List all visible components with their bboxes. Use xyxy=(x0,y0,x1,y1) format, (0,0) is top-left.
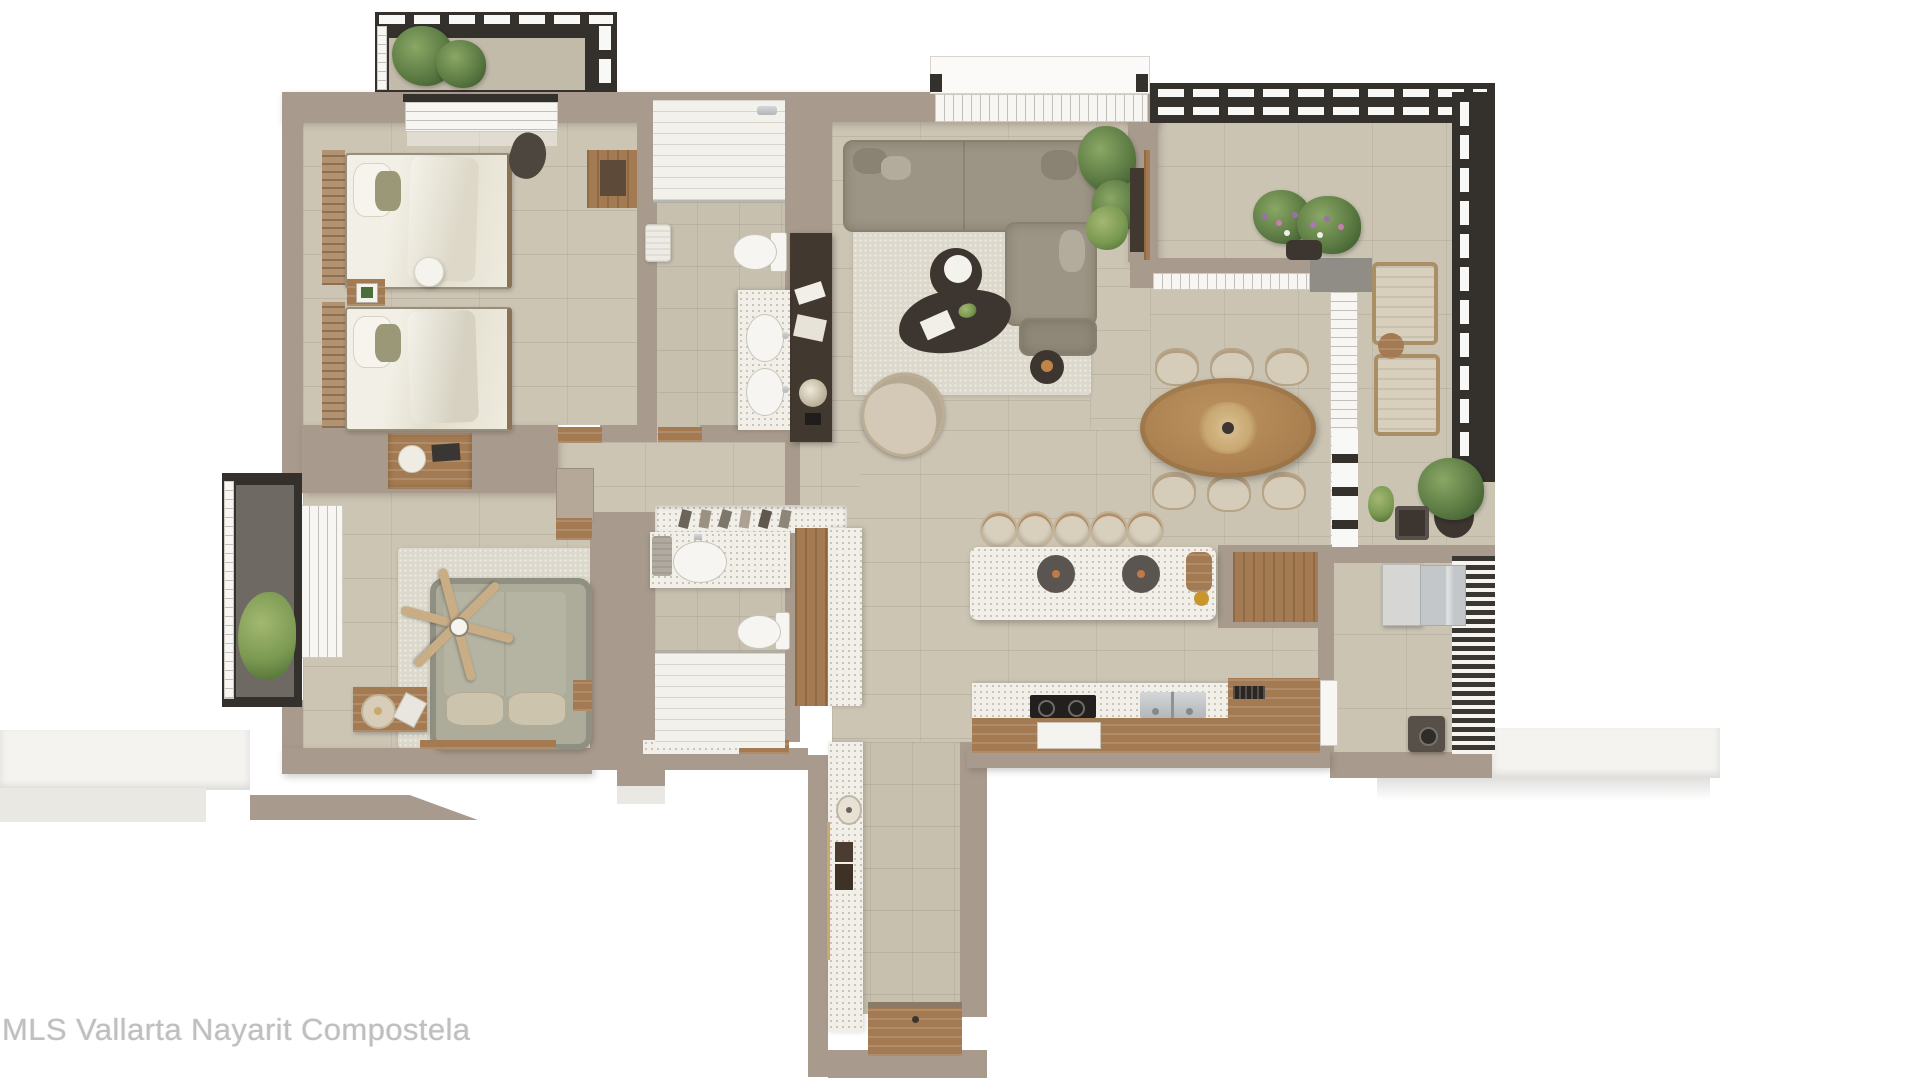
washer xyxy=(1382,564,1422,626)
pergola-top-frame xyxy=(1150,83,1495,123)
dining-chair xyxy=(1155,348,1199,386)
pergola-glass-line xyxy=(1158,107,1487,115)
honey-jar xyxy=(1194,591,1209,606)
built-in-fridge-cabinet xyxy=(1233,552,1318,622)
balcony-plant xyxy=(436,40,486,88)
floor-plan-render: MLS Vallarta Nayarit Compostela xyxy=(0,0,1920,1080)
round-pouf xyxy=(414,257,444,287)
exterior-walkway-left xyxy=(0,730,250,790)
vanity-bathroom1 xyxy=(738,290,790,430)
sink-faucet xyxy=(1152,708,1159,715)
kitchen-counter-front xyxy=(972,718,1228,753)
lounge-chair-1 xyxy=(1372,262,1438,345)
towel-bathroom2 xyxy=(652,536,672,576)
double-sink xyxy=(1140,692,1206,718)
towel-bathroom1 xyxy=(645,224,671,262)
table-flowers xyxy=(957,302,977,319)
terrace-slider-door xyxy=(1153,273,1310,290)
shower-glass xyxy=(653,200,785,203)
door-handle xyxy=(912,1016,919,1023)
sink-divider xyxy=(1171,692,1174,718)
entry-door xyxy=(868,1008,962,1056)
planter-flowers xyxy=(1262,214,1268,220)
terrace-door-threshold xyxy=(1310,258,1372,292)
console-box xyxy=(805,413,821,425)
toilet2-bowl xyxy=(737,615,781,649)
plate-center xyxy=(846,807,852,813)
exterior-walkway-right xyxy=(1492,728,1720,778)
dryer xyxy=(1420,565,1466,626)
round-tray xyxy=(361,694,396,729)
kitchen-tall-cabinets xyxy=(795,528,828,706)
pergola-glass-line xyxy=(1158,89,1487,97)
dining-chair xyxy=(1262,472,1306,510)
dining-chair xyxy=(1265,348,1309,386)
bedroom1-door-threshold xyxy=(558,427,602,443)
sofa-pillow xyxy=(881,156,911,180)
kitchen-corner-counter xyxy=(1228,678,1320,753)
bedroom2-balcony-door xyxy=(300,505,343,658)
faucet xyxy=(694,534,702,540)
sofa-sectional-main xyxy=(843,140,1097,232)
terrace-side-table xyxy=(1378,333,1404,359)
balcony-glass-panel-right xyxy=(599,26,611,90)
cooktop-burner xyxy=(1038,700,1055,717)
decor-cube xyxy=(835,864,853,890)
console-crystal-lamp xyxy=(799,379,827,407)
bathroom1-door-threshold xyxy=(658,427,702,442)
dining-chair xyxy=(1207,474,1251,512)
oven-door xyxy=(1037,722,1101,749)
south-wall-bedroom2 xyxy=(282,748,592,774)
night-stand-right xyxy=(573,680,592,711)
balcony-palm-plant xyxy=(238,592,296,680)
sofa-pillow xyxy=(1059,230,1085,272)
kitchen-island xyxy=(970,547,1216,620)
vanity-bathroom2 xyxy=(650,532,790,588)
exterior-platform-right xyxy=(1330,750,1512,778)
table-tray xyxy=(944,255,972,283)
west-wall-upper xyxy=(282,92,303,482)
faucet xyxy=(782,332,789,339)
toilet1-bowl xyxy=(733,234,777,270)
hanging-garment xyxy=(739,509,752,528)
side-table-candle xyxy=(1030,350,1064,384)
rattan-headboard xyxy=(322,302,345,428)
bed-pillow xyxy=(508,692,566,726)
ceiling-fan xyxy=(399,567,515,683)
hanging-garment xyxy=(758,509,772,529)
faucet xyxy=(782,386,789,393)
wardrobe-inner xyxy=(600,160,626,196)
desk-hat xyxy=(398,445,426,473)
centerpiece-vase xyxy=(1222,422,1234,434)
dining-chair xyxy=(1152,472,1196,510)
square-planter xyxy=(1395,506,1429,540)
sofa-pillow xyxy=(1041,150,1077,180)
desk-niche xyxy=(388,433,472,489)
rattan-headboard xyxy=(322,150,345,285)
watermark-text: MLS Vallarta Nayarit Compostela xyxy=(2,1012,470,1048)
lounge-chair-2 xyxy=(1374,354,1440,436)
wall-living-west xyxy=(800,92,832,237)
glass-railing-east xyxy=(1452,92,1495,482)
vanity-sink xyxy=(746,314,784,362)
night-stand-left xyxy=(353,687,427,732)
tv-console xyxy=(790,233,832,442)
wardrobe-bedroom2 xyxy=(556,468,594,522)
sofa-ottoman xyxy=(1019,318,1097,356)
bed-pillow xyxy=(446,692,504,726)
dining-table xyxy=(1140,378,1316,478)
cooktop-burner xyxy=(1068,700,1085,717)
ledge-post-east xyxy=(1136,74,1148,92)
island-burner-1 xyxy=(1037,555,1075,593)
boiler-dial xyxy=(1419,727,1438,746)
bar-stool xyxy=(980,511,1018,549)
corridor-east-wall xyxy=(960,742,987,1017)
sink-faucet xyxy=(1186,708,1193,715)
wardrobe-bedroom1 xyxy=(587,150,637,208)
twin-bed-2 xyxy=(345,307,512,431)
grill-grate xyxy=(1233,686,1265,699)
console-book xyxy=(793,314,827,342)
duvet-drape xyxy=(407,310,479,424)
vanity-sink xyxy=(746,368,784,416)
gold-trim xyxy=(827,822,830,960)
foot-bench xyxy=(420,740,556,749)
laundry-door xyxy=(1320,680,1338,746)
burner-center xyxy=(1137,570,1145,578)
west-wall-lower xyxy=(282,700,303,755)
hanging-garment xyxy=(778,509,791,529)
terrace-se-door xyxy=(1332,430,1358,547)
accent-pillow xyxy=(375,171,401,211)
balcony-glass-panel xyxy=(224,481,234,699)
media-panel-terrace-side xyxy=(1130,168,1144,252)
art-image xyxy=(361,287,373,298)
fan-hub xyxy=(449,617,469,637)
exterior-step-left xyxy=(0,788,206,822)
bedroom1-window xyxy=(405,102,558,132)
corridor-console-band xyxy=(828,742,863,1032)
kitchen-counter xyxy=(972,683,1228,720)
hanging-garment xyxy=(718,509,733,529)
table-book xyxy=(920,310,956,340)
exterior-ledge-left xyxy=(250,795,478,820)
railing-glass-panels xyxy=(1460,102,1469,472)
balcony-glass-panel xyxy=(377,26,387,90)
cutting-board xyxy=(1186,552,1212,592)
wardrobe-shelf xyxy=(556,518,592,540)
vanity-sink xyxy=(673,541,727,583)
hallway-floor xyxy=(557,442,860,512)
hanging-garment xyxy=(678,509,692,529)
accent-pillow xyxy=(375,324,401,362)
pergola-glass-line xyxy=(379,15,613,24)
living-floor-plant-small xyxy=(1086,206,1128,250)
cooktop xyxy=(1030,695,1096,718)
wall-stub-bedroom1-door xyxy=(600,425,637,442)
exterior-step-center xyxy=(617,786,665,804)
bar-stool xyxy=(1053,511,1091,549)
marble-decor xyxy=(393,692,427,728)
decor-cube xyxy=(835,842,853,862)
burner-center xyxy=(1052,570,1060,578)
sofa-chaise xyxy=(1005,222,1097,326)
bedroom1-window-track xyxy=(403,94,558,102)
ledge-post-west xyxy=(930,74,942,92)
shower-bathroom2 xyxy=(655,653,785,748)
console-book xyxy=(794,281,826,305)
framed-art xyxy=(356,283,378,303)
terrace-plant-small xyxy=(1368,486,1394,522)
desk-laptop xyxy=(431,443,460,462)
boiler-unit xyxy=(1408,716,1445,752)
island-burner-2 xyxy=(1122,555,1160,593)
corridor-west-wall xyxy=(808,755,828,1077)
exterior-step-center-top xyxy=(617,768,665,786)
decor-plate xyxy=(836,795,862,825)
wall-bedroom2-bathroom2 xyxy=(590,512,655,752)
bar-stool xyxy=(1090,511,1128,549)
hanging-garment xyxy=(699,509,712,528)
shower-bathroom1 xyxy=(653,100,785,202)
sofa-seam xyxy=(963,142,965,230)
gold-decor xyxy=(374,707,382,715)
night-stand-bedroom1 xyxy=(347,279,385,306)
divider-wood-edge xyxy=(1144,150,1150,260)
exterior-shadow-right xyxy=(1377,778,1710,800)
bar-stool xyxy=(1016,511,1054,549)
planter-pot xyxy=(1286,240,1322,260)
shower-fixture xyxy=(757,106,777,115)
living-window xyxy=(935,94,1148,122)
candle xyxy=(1041,360,1053,372)
living-window-ledge xyxy=(930,56,1150,94)
bar-stool xyxy=(1126,511,1164,549)
kitchen-cabinet-face xyxy=(828,528,862,706)
